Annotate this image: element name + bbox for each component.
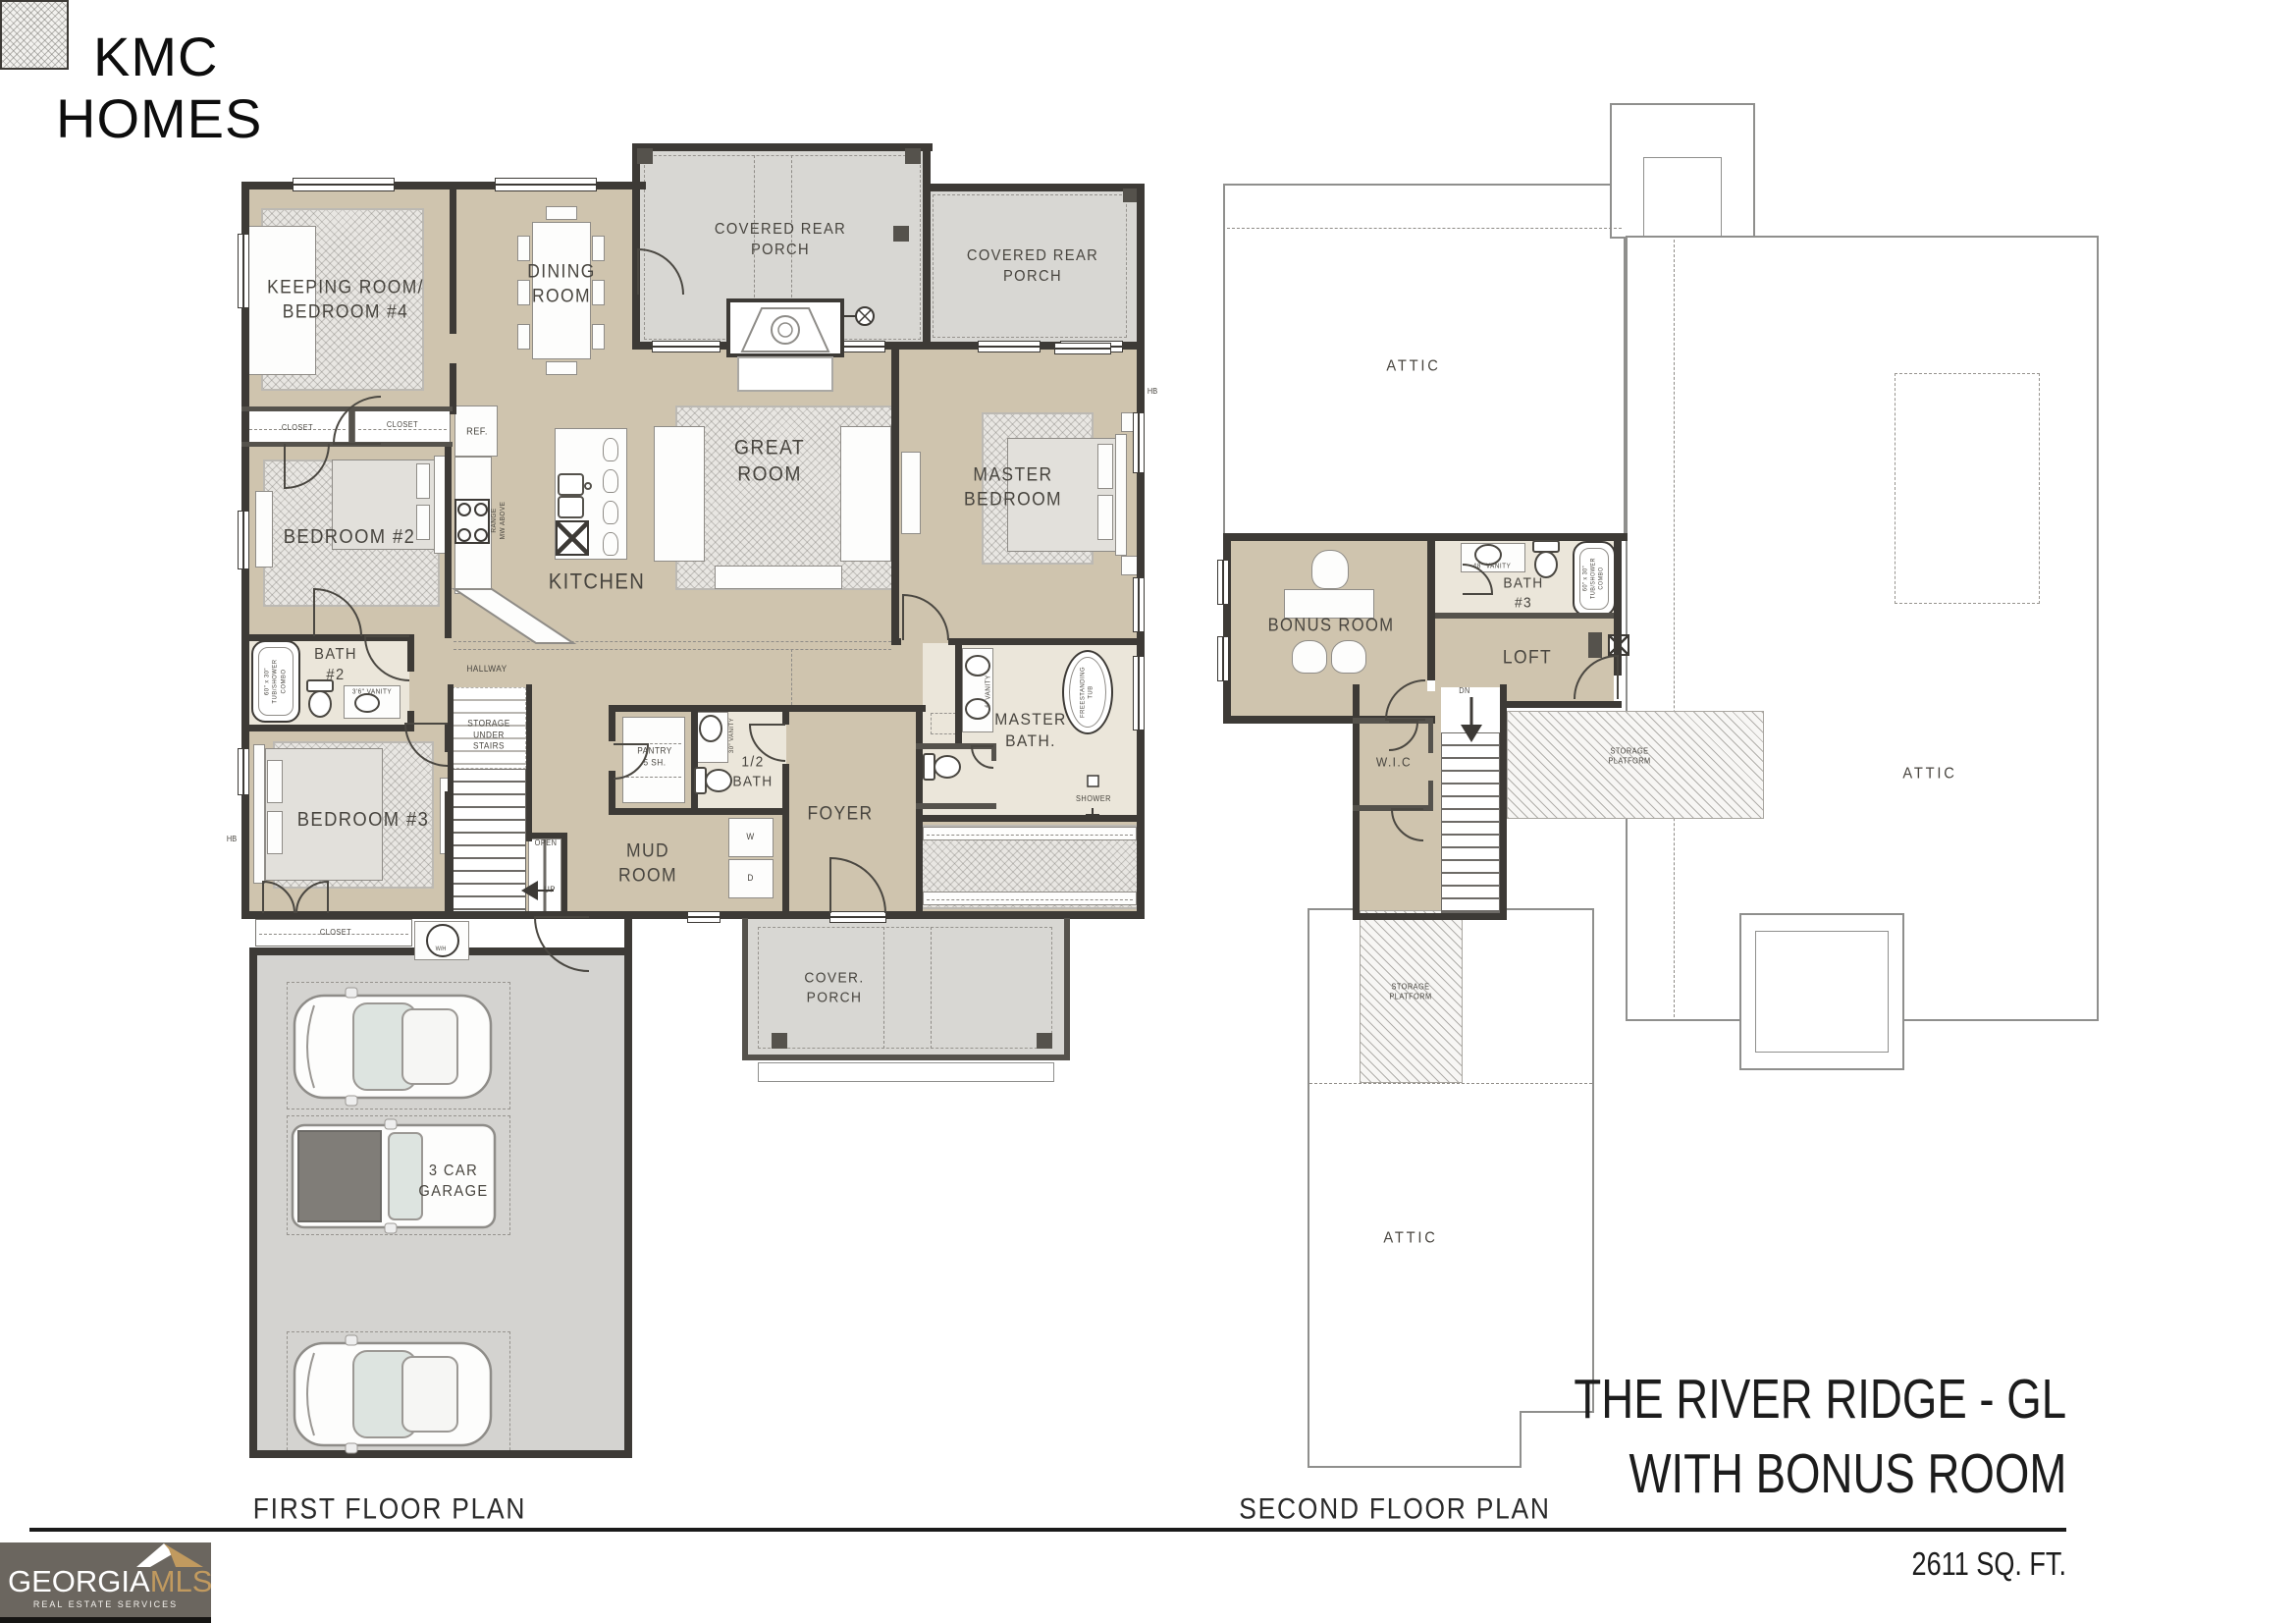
bedroom3-pillow [267,811,283,854]
logo-tagline: REAL ESTATE SERVICES [0,1599,211,1609]
porch-post [772,1033,787,1049]
ceiling-break-a [454,641,891,642]
cover-porch-dash [758,927,1052,1049]
wall [609,808,789,815]
label-range: RANGE MW ABOVE [490,502,507,540]
wall [1427,533,1435,680]
window [238,511,249,569]
room-label-bedroom3: BEDROOM #3 [297,807,429,833]
garage-bay-3 [287,1331,510,1455]
window [827,341,885,352]
room-label-attic: ATTIC [1383,1229,1437,1250]
label-storage-platform: STORAGE PLATFORM [1608,747,1650,768]
second-floor-plan-title: SECOND FLOOR PLAN [1239,1490,1550,1529]
chimney-chase [1588,632,1602,658]
wall [1504,701,1622,708]
first-floor-plan [0,0,2296,70]
stairs-up [452,769,526,913]
range [454,499,490,544]
wall [916,743,996,749]
label-shower: SHOWER [1076,794,1111,804]
room-label-mud: MUD ROOM [618,839,677,888]
label-closet: CLOSET [320,928,351,938]
porch-post [893,226,909,242]
georgia-mls-logo: GEORGIAMLS REAL ESTATE SERVICES [0,1542,211,1623]
label-tub2: 60" x 30" TUB/SHOWER COMBO [263,659,288,703]
window [652,341,721,352]
label-ref: REF. [466,426,488,439]
room-label-porch1: COVERED REAR PORCH [715,220,846,261]
wall [742,1055,1070,1060]
room-label-master-bedroom: MASTER BEDROOM [964,463,1062,512]
wall [249,947,257,1458]
label-washer: W [746,832,755,843]
wall [632,143,933,151]
master-closet-rod-bottom [923,892,1137,905]
roof-dash-low [1309,1083,1592,1084]
garage-bay-1 [287,982,510,1109]
label-closet: CLOSET [282,423,313,433]
label-pantry: PANTRY 5 SH. [637,745,672,768]
roof-dash [1227,228,1622,229]
room-label-loft: LOFT [1503,647,1552,672]
room-label-bath2: BATH #2 [314,645,357,686]
room-label-keeping: KEEPING ROOM/ BEDROOM #4 [267,276,424,324]
logo-mls: MLS [150,1564,213,1598]
porch-steps [758,1062,1054,1082]
stairs-down [1441,732,1500,913]
great-sofa-left [654,426,705,562]
island-stool [603,469,618,493]
wall [742,918,748,1060]
wall [1428,724,1433,753]
wall [448,684,454,918]
master-pillow [1097,495,1113,540]
bonus-chair [1331,640,1366,674]
label-dryer: D [747,873,754,885]
porch-post [1123,189,1137,202]
window [1054,343,1111,354]
room-label-porch2: COVERED REAR PORCH [967,246,1098,288]
wall [916,803,996,809]
window [978,341,1041,352]
island-stool [603,438,618,461]
label-storage-under-stairs: STORAGE UNDER STAIRS [467,718,510,752]
bedroom3-pillow [267,760,283,803]
label-freestanding-tub: FREESTANDING TUB [1080,667,1096,718]
window [238,748,249,795]
room-label-bonus: BONUS ROOM [1268,614,1395,636]
bedroom2-pillow [416,463,430,499]
wall [632,295,640,349]
dining-chair [592,236,605,261]
wall [782,705,789,725]
half-bath-vanity [695,712,728,763]
wall [1064,918,1070,1060]
master-dresser [901,452,921,534]
logo-bottom-bar [0,1617,211,1623]
floor-plan-sheet: KMC HOMES [0,0,2296,1623]
wall [241,725,414,731]
wall [609,712,615,741]
window [1133,656,1145,730]
wall [1428,781,1433,805]
linen-dash [931,713,956,734]
window [293,178,395,191]
stair-return [528,839,561,915]
label-up: UP [544,884,556,894]
bonus-desk-chair [1311,550,1349,589]
porch-post [905,148,921,164]
great-sofa-right [840,426,891,562]
wall [1353,913,1507,920]
label-storage-platform: STORAGE PLATFORM [1389,983,1431,1003]
wall [923,184,1145,191]
dishwasher [556,520,589,556]
room-label-bath3: BATH #3 [1503,574,1543,613]
wall [632,182,640,239]
label-vanity-6: 6' VANITY [984,675,992,708]
dining-chair [546,361,577,375]
label-dn: DN [1459,686,1470,696]
room-label-cover-porch: COVER. PORCH [804,969,864,1007]
room-label-half-bath: 1/2 BATH [732,753,773,791]
wall [691,705,698,815]
room-label-foyer: FOYER [807,803,873,828]
wall [561,833,567,918]
rear-dormer-inner [1755,931,1889,1053]
label-hallway: HALLWAY [466,664,507,676]
wall [891,349,899,643]
porch-post [1037,1033,1052,1049]
window [1217,560,1229,605]
master-headboard [1115,434,1127,556]
plan-title-line1: THE RIVER RIDGE - GL [1574,1367,2066,1432]
wall [1353,805,1433,811]
wall [955,645,962,743]
wall [1435,613,1614,619]
dining-chair [517,324,530,350]
wall [1223,533,1628,541]
wall [624,919,632,1458]
wall [916,815,1145,822]
bedroom3-headboard [253,744,265,884]
wall [241,634,414,641]
window [1133,412,1145,473]
wall [1500,684,1507,920]
room-label-master-bath: MASTER BATH. [994,709,1066,752]
logo-georgia: GEORGIA [8,1564,150,1598]
bedroom2-pillow [416,505,430,540]
wall [445,447,452,638]
label-vanity-48: 48" VANITY [1473,562,1512,570]
master-closet-rod-top [923,827,1137,840]
label-hose-bib: HB [227,835,237,844]
wall [1614,533,1622,676]
great-console [715,566,842,589]
room-label-great: GREAT ROOM [734,435,805,489]
wall [450,182,456,334]
room-label-attic: ATTIC [1386,357,1440,378]
builder-logo: KMC HOMES [56,26,262,150]
front-dormer-inner [1643,157,1722,239]
roof-dash-line [1674,240,1675,1017]
first-floor-plan-title: FIRST FLOOR PLAN [253,1490,527,1529]
builder-line1: KMC [93,26,262,87]
wall [249,1450,632,1458]
room-label-bedroom2: BEDROOM #2 [284,524,415,550]
room-label-garage: 3 CAR GARAGE [418,1162,488,1203]
plan-sqft: 2611 SQ. FT. [1912,1545,2066,1583]
front-door-opening [829,911,886,923]
attic-right [1626,236,2099,1021]
label-vanity-30: 30" VANITY [728,718,736,753]
dining-chair [592,324,605,350]
plan-title-line2: WITH BONUS ROOM [1629,1441,2066,1506]
wall [923,143,931,350]
builder-line2: HOMES [56,87,262,149]
porch-post [637,148,653,164]
wall [241,442,453,447]
wall [526,684,532,841]
footer-rule [29,1528,2066,1532]
window [1217,636,1229,681]
window [495,178,597,191]
wall [948,638,1145,645]
dining-chair [546,206,577,220]
wall [1137,184,1145,349]
wall [782,764,789,918]
island-stool [603,501,618,524]
mud-door-opening [687,911,721,923]
room-label-attic: ATTIC [1902,765,1956,785]
wall [609,705,926,712]
roof-dash-rect [1895,373,2040,604]
label-vanity-36: 3'6" VANITY [352,687,392,696]
ceiling-break-b [454,649,891,650]
wall [349,406,354,446]
island-stool [603,532,618,556]
wall [916,710,923,918]
ceiling-break-c [791,649,792,705]
wall [1353,718,1433,724]
label-tub3: 60" x 30" TUB/SHOWER COMBO [1582,558,1605,599]
cover-porch-dash-b [931,927,932,1049]
label-closet: CLOSET [387,420,418,430]
window [238,234,249,308]
room-label-wic: W.I.C [1376,755,1412,772]
bedroom2-dresser [255,491,273,568]
label-water-heater: W/H [436,947,447,954]
wall [891,638,901,645]
master-pillow [1097,444,1113,489]
label-hose-bib: HB [1148,387,1157,397]
dining-chair [517,236,530,261]
room-label-dining: DINING ROOM [527,260,595,308]
label-open: OPEN [535,839,558,848]
bonus-chair [1292,640,1327,674]
room-label-kitchen: KITCHEN [549,568,645,597]
window [1133,577,1145,632]
wall [407,634,414,672]
cover-porch-dash-a [883,927,884,1049]
wall [241,406,453,411]
